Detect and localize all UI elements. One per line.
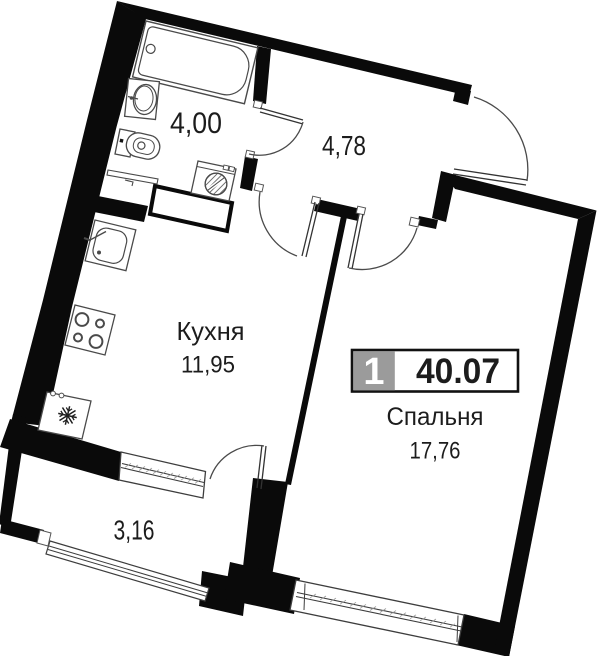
svg-text:4,78: 4,78 [322,130,366,161]
svg-text:1: 1 [363,351,384,393]
svg-text:3,16: 3,16 [114,515,155,546]
svg-text:Спальня: Спальня [387,403,484,431]
svg-text:17,76: 17,76 [410,438,461,465]
svg-text:40.07: 40.07 [416,352,500,391]
svg-text:4,00: 4,00 [170,107,222,140]
svg-text:Кухня: Кухня [177,316,245,346]
svg-text:11,95: 11,95 [181,352,235,379]
